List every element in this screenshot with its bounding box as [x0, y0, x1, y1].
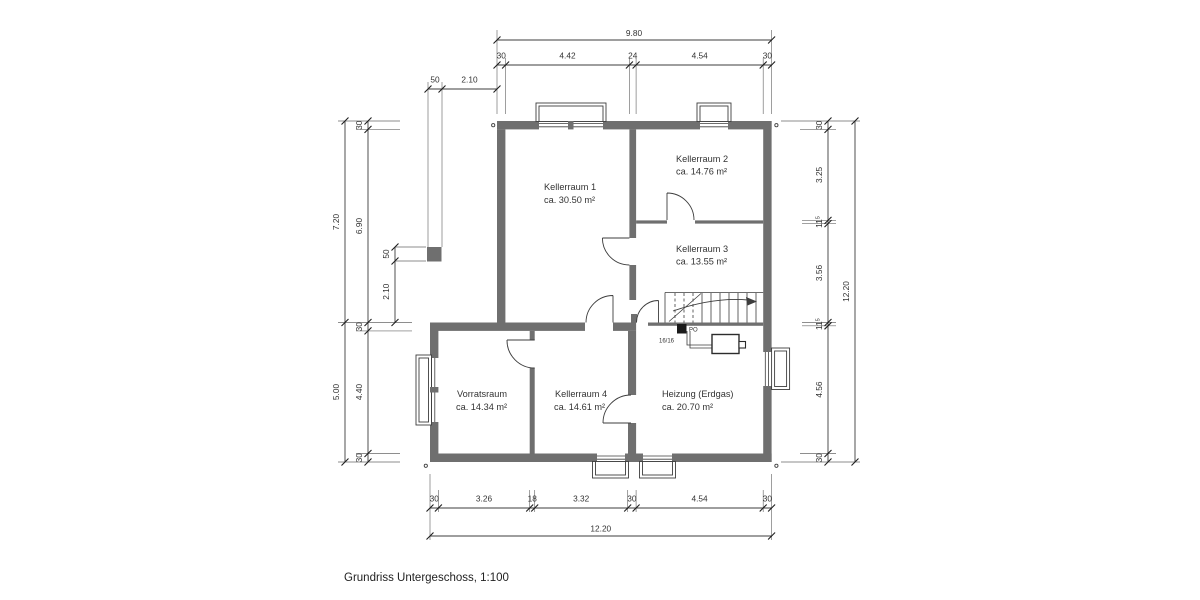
dim-label: 4.42 [559, 51, 576, 61]
dim-label: 3.32 [573, 494, 590, 504]
dim-label: 50 [381, 249, 391, 259]
dim-label: 4.40 [354, 384, 364, 401]
room-area: ca. 20.70 m² [662, 402, 713, 412]
room-name: Heizung (Erdgas) [662, 389, 734, 399]
dim-label: 30 [627, 494, 637, 504]
chimney-block [427, 247, 442, 262]
wall-segment [763, 121, 771, 352]
dim-label: 12.20 [841, 281, 851, 302]
dim-label: 4.54 [692, 51, 709, 61]
wall-segment [636, 220, 667, 223]
dim-label: 30 [497, 51, 507, 61]
window-post [568, 121, 574, 129]
dim-label: 4.56 [814, 381, 824, 398]
wall-segment [603, 121, 700, 129]
wall-segment [672, 454, 772, 463]
column-size-label: 16/16 [659, 339, 675, 345]
window-post [430, 387, 438, 393]
floorplan-canvas: 9.80 30 4.42 24 4.54 30 50 2.10 7.20 5.0… [0, 0, 1200, 600]
dim-label: 2.10 [461, 75, 478, 85]
window-well [700, 106, 728, 122]
room-area: ca. 13.55 m² [676, 257, 727, 267]
window-well [596, 462, 626, 476]
dim-label: 30 [814, 453, 824, 463]
dim-label: 30 [354, 453, 364, 463]
room-area: ca. 14.76 m² [676, 167, 727, 177]
dim-label: 24 [628, 51, 638, 61]
dim-label: 2.10 [381, 283, 391, 300]
dim-label: 3.25 [814, 166, 824, 183]
wall-segment [648, 323, 763, 326]
floorplan-page: 9.80 30 4.42 24 4.54 30 50 2.10 7.20 5.0… [0, 0, 1200, 600]
wall-segment [430, 323, 585, 331]
dim-label: 30 [354, 322, 364, 332]
wall-segment [430, 422, 438, 454]
dim-label: 5.00 [331, 384, 341, 401]
wall-segment [530, 368, 535, 454]
dim-label: 9.80 [626, 28, 643, 38]
room-name: Vorratsraum [457, 389, 507, 399]
window-well [539, 106, 603, 122]
column [677, 324, 687, 334]
room-area: ca. 14.61 m² [554, 402, 605, 412]
boiler [712, 335, 739, 354]
dim-label: 30 [763, 494, 773, 504]
dim-label: 30 [763, 51, 773, 61]
wall-segment [629, 129, 636, 238]
dim-label: 30 [354, 120, 364, 130]
room-area: ca. 14.34 m² [456, 402, 507, 412]
column-label: PO [689, 328, 698, 334]
wall-segment [430, 454, 597, 463]
wall-segment [497, 129, 505, 322]
wall-segment [613, 323, 636, 331]
boiler-flue [739, 342, 746, 349]
room-name: Kellerraum 2 [676, 154, 728, 164]
dim-label: 50 [430, 75, 440, 85]
room-area: ca. 30.50 m² [544, 195, 595, 205]
wall-segment [497, 121, 539, 129]
window-well [643, 462, 673, 476]
dim-label: 18 [528, 494, 538, 504]
room-name: Kellerraum 3 [676, 244, 728, 254]
wall-segment [628, 331, 636, 395]
window-well [419, 358, 429, 422]
background [0, 0, 1200, 600]
dim-label: 3.56 [814, 265, 824, 282]
dim-label: 4.54 [692, 494, 709, 504]
wall-segment [530, 331, 535, 340]
window-well [775, 351, 787, 387]
wall-segment [629, 265, 636, 300]
wall-segment [695, 220, 763, 223]
drawing-title: Grundriss Untergeschoss, 1:100 [344, 572, 509, 584]
room-name: Kellerraum 4 [555, 389, 607, 399]
room-name: Kellerraum 1 [544, 182, 596, 192]
dim-label: 6.90 [354, 218, 364, 235]
dim-label: 7.20 [331, 214, 341, 231]
dim-label: 12.20 [590, 524, 611, 534]
dim-label: 30 [430, 494, 440, 504]
wall-segment [763, 386, 771, 462]
wall-segment [628, 423, 636, 454]
wall-segment [625, 454, 643, 463]
dim-label: 30 [814, 120, 824, 130]
dim-label: 3.26 [476, 494, 493, 504]
